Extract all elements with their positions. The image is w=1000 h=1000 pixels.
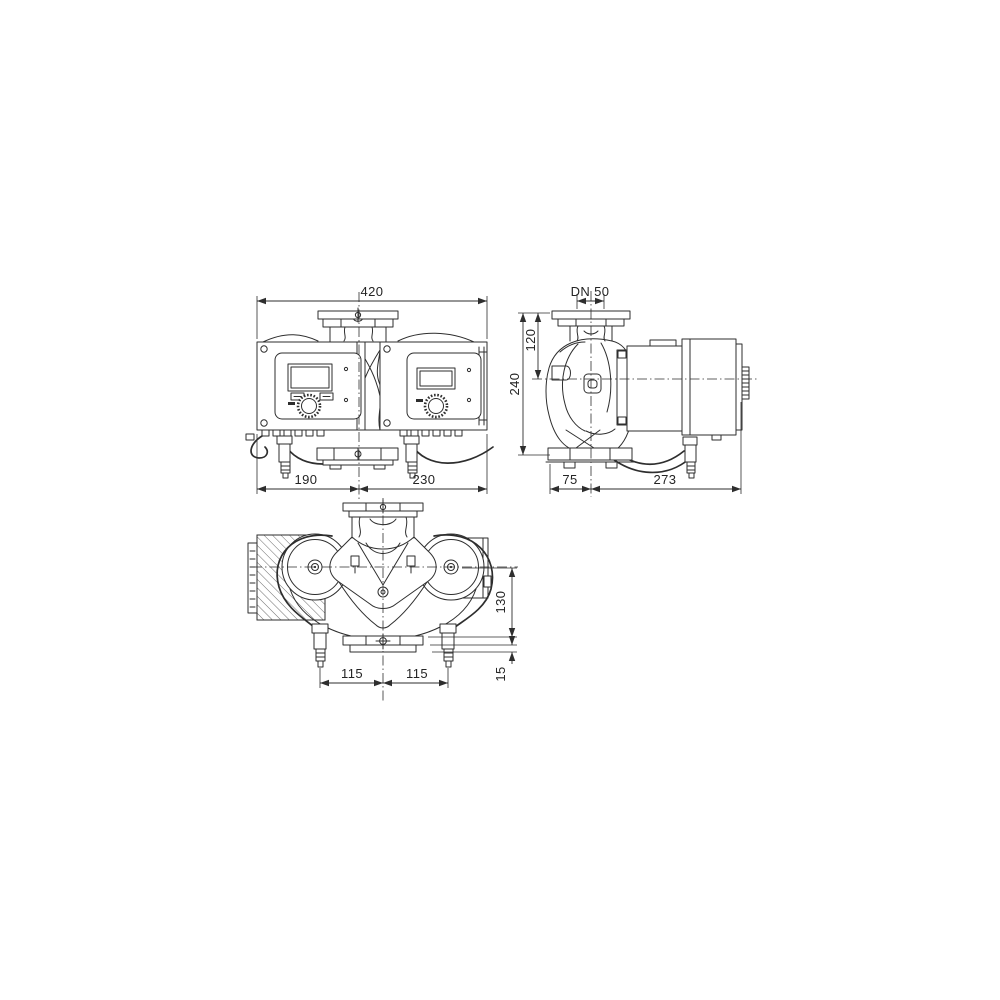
- dim-label-75: 75: [562, 472, 577, 487]
- shaft-plug: [584, 374, 601, 393]
- side-motor: [617, 339, 749, 440]
- front-view: 420 190 230: [246, 284, 493, 500]
- top-view: 130 15 115 115: [248, 498, 518, 702]
- front-left-control-module: [275, 353, 361, 419]
- dim-label-120: 120: [523, 329, 538, 352]
- dim-label-dn50: DN 50: [571, 284, 610, 299]
- side-plug: [683, 437, 697, 478]
- pump-dimensional-drawing: 420 190 230: [0, 0, 1000, 1000]
- dim-label-240: 240: [507, 373, 522, 396]
- dim-label-190: 190: [295, 472, 318, 487]
- dim-side-flange-to-axis: 120: [523, 313, 538, 379]
- dim-label-115-right: 115: [406, 666, 428, 681]
- dim-label-15: 15: [493, 666, 508, 681]
- top-left-plug: [312, 624, 328, 667]
- left-display: [288, 364, 332, 391]
- dim-side-dn: DN 50: [571, 284, 610, 309]
- dim-label-420: 420: [361, 284, 384, 299]
- front-left-plug: [277, 436, 292, 478]
- dim-label-273: 273: [654, 472, 677, 487]
- front-right-control-module: [407, 353, 481, 419]
- dim-label-115-left: 115: [341, 666, 363, 681]
- top-right-plug: [440, 624, 456, 667]
- dim-label-230: 230: [413, 472, 436, 487]
- dim-top-right-plug-offset: 115: [383, 666, 448, 688]
- front-bottom-flange: [317, 448, 398, 469]
- front-top-flange: [318, 308, 398, 342]
- dim-label-130: 130: [493, 591, 508, 614]
- side-view: DN 50 240 120 75 273: [507, 284, 757, 497]
- technical-drawing-page: 420 190 230: [0, 0, 1000, 1000]
- dim-top-left-plug-offset: 115: [320, 666, 383, 688]
- gauge-lug: [552, 366, 571, 380]
